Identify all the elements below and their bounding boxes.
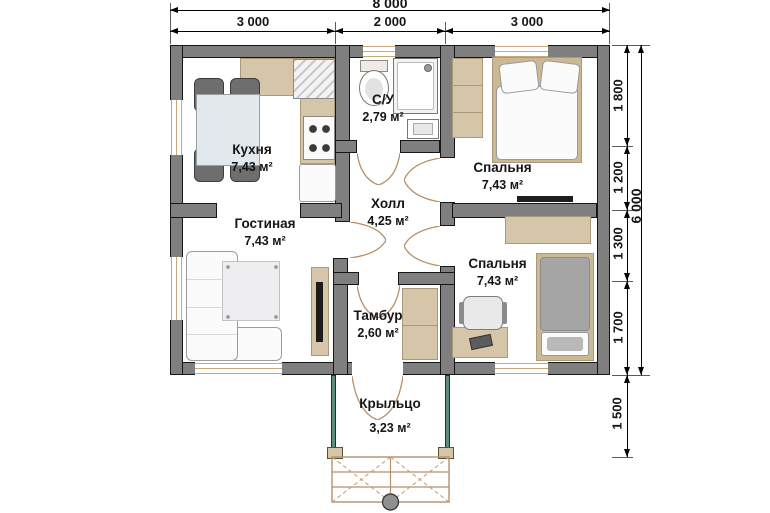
room-label-bathroom: С/У 2,79 м² <box>348 92 418 125</box>
room-name: С/У <box>348 92 418 107</box>
floor-plan: Кухня 7,43 м² Гостиная 7,43 м² С/У 2,79 … <box>0 0 770 513</box>
wardrobe <box>505 216 591 244</box>
window <box>170 257 183 320</box>
pillow <box>498 60 539 94</box>
wall-segment <box>398 272 455 285</box>
dim-total-height: 6 000 <box>628 176 644 236</box>
rug <box>222 261 280 321</box>
dim-segment: 3 000 <box>213 14 293 29</box>
dim-segment: 1 300 <box>611 214 626 274</box>
room-area: 7,43 м² <box>455 178 550 193</box>
room-area: 7,43 м² <box>197 160 307 175</box>
room-label-kitchen: Кухня 7,43 м² <box>197 142 307 175</box>
wardrobe <box>452 58 483 138</box>
room-label-bedroom1: Спальня 7,43 м² <box>455 160 550 193</box>
door-arc-bedroom2 <box>404 226 440 266</box>
dim-porch-depth: 1 500 <box>610 384 625 444</box>
room-area: 2,79 м² <box>348 110 418 125</box>
chair-armrest <box>502 302 507 324</box>
tv <box>517 196 573 202</box>
wall-right <box>597 45 610 375</box>
room-label-bedroom2: Спальня 7,43 м² <box>450 256 545 289</box>
wall-segment <box>400 140 440 153</box>
bed-blanket <box>540 257 590 331</box>
door-arc-bathroom <box>357 153 400 185</box>
room-area: 4,25 м² <box>352 214 424 229</box>
room-area: 7,43 м² <box>210 234 320 249</box>
wall-segment <box>335 45 350 222</box>
dim-total-width: 8 000 <box>350 0 430 11</box>
room-name: Холл <box>352 196 424 211</box>
office-chair <box>463 296 503 330</box>
room-area: 3,23 м² <box>335 421 445 436</box>
entrance-door-gap <box>352 361 403 376</box>
room-label-vestibule: Тамбур 2,60 м² <box>340 308 416 341</box>
room-name: Кухня <box>197 142 307 157</box>
porch-steps <box>331 456 450 512</box>
stove <box>303 116 335 160</box>
room-label-porch: Крыльцо 3,23 м² <box>335 396 445 436</box>
dim-segment: 1 200 <box>611 148 626 208</box>
dim-segment: 1 700 <box>611 298 626 358</box>
room-name: Крыльцо <box>335 396 445 411</box>
dim-segment: 3 000 <box>487 14 567 29</box>
dim-segment: 2 000 <box>350 14 430 29</box>
dim-segment: 1 800 <box>611 66 626 126</box>
pillow <box>539 60 580 94</box>
wall-segment <box>335 140 357 153</box>
room-area: 2,60 м² <box>340 326 416 341</box>
room-name: Тамбур <box>340 308 416 323</box>
extension-line <box>612 457 633 458</box>
shower-head-icon <box>424 64 432 72</box>
room-label-living: Гостиная 7,43 м² <box>210 216 320 249</box>
window <box>170 100 183 155</box>
window <box>495 362 548 375</box>
room-name: Спальня <box>450 256 545 271</box>
tv <box>316 282 323 342</box>
kitchen-sink <box>293 59 335 99</box>
room-name: Гостиная <box>210 216 320 231</box>
room-name: Спальня <box>455 160 550 175</box>
room-area: 7,43 м² <box>450 274 545 289</box>
window <box>363 45 395 58</box>
chair-armrest <box>459 302 464 324</box>
window <box>195 362 282 375</box>
porch-post <box>445 375 450 448</box>
bed-blanket <box>496 86 578 160</box>
room-label-hall: Холл 4,25 м² <box>352 196 424 229</box>
pillow-inner <box>547 337 583 351</box>
wall-segment <box>333 272 359 285</box>
